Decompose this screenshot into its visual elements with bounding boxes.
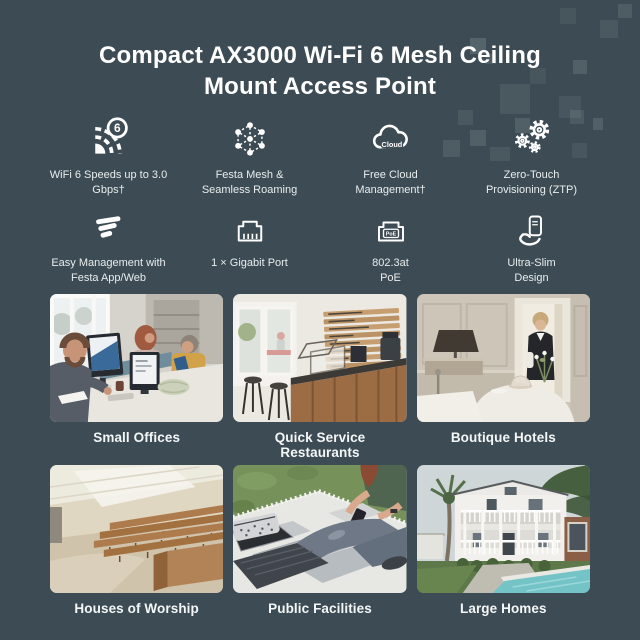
use-case-grid: Small Offices: [0, 294, 640, 621]
use-case-label: Quick Service Restaurants: [233, 422, 406, 465]
house-photo: [417, 465, 590, 593]
picnic-photo: [233, 465, 406, 593]
auditorium-photo: [50, 465, 223, 593]
page-title: Compact AX3000 Wi-Fi 6 Mesh Ceiling Moun…: [65, 40, 575, 102]
feature-ztp: Zero-Touch Provisioning (ZTP): [461, 116, 602, 198]
feature-label: Festa Mesh & Seamless Roaming: [195, 168, 305, 198]
use-case-label: Houses of Worship: [50, 593, 223, 621]
festa-logo-icon: [91, 210, 127, 248]
feature-cloud-management: Cloud Free Cloud Management†: [320, 116, 461, 198]
wifi6-badge-text: 6: [113, 121, 120, 135]
office-photo: [50, 294, 223, 422]
feature-poe: PoE 802.3at PoE: [320, 210, 461, 286]
feature-label: Easy Management with Festa App/Web: [46, 256, 171, 286]
feature-ultra-slim: Ultra-Slim Design: [461, 210, 602, 286]
use-case-public-facilities: Public Facilities: [233, 465, 406, 621]
use-case-boutique-hotels: Boutique Hotels: [417, 294, 590, 465]
feature-label: 1 × Gigabit Port: [211, 256, 288, 271]
use-case-quick-service-restaurants: Quick Service Restaurants: [233, 294, 406, 465]
feature-festa-app: Easy Management with Festa App/Web: [38, 210, 179, 286]
feature-label: Free Cloud Management†: [346, 168, 436, 198]
poe-port-icon: PoE: [373, 210, 409, 248]
hotel-photo: [417, 294, 590, 422]
cloud-icon: Cloud: [369, 116, 413, 160]
use-case-small-offices: Small Offices: [50, 294, 223, 465]
use-case-large-homes: Large Homes: [417, 465, 590, 621]
poe-icon-text: PoE: [385, 232, 396, 238]
feature-gigabit-port: 1 × Gigabit Port: [179, 210, 320, 286]
use-case-label: Boutique Hotels: [417, 422, 590, 450]
mesh-icon: [228, 116, 272, 160]
ethernet-port-icon: [232, 210, 268, 248]
gears-icon: [510, 116, 554, 160]
cloud-icon-text: Cloud: [381, 141, 402, 150]
feature-label: Ultra-Slim Design: [497, 256, 567, 286]
ultra-slim-icon: [514, 210, 550, 248]
product-banner: Compact AX3000 Wi-Fi 6 Mesh Ceiling Moun…: [0, 0, 640, 640]
use-case-label: Large Homes: [417, 593, 590, 621]
use-case-label: Public Facilities: [233, 593, 406, 621]
feature-festa-mesh: Festa Mesh & Seamless Roaming: [179, 116, 320, 198]
use-case-houses-of-worship: Houses of Worship: [50, 465, 223, 621]
feature-grid: 6 WiFi 6 Speeds up to 3.0 Gbps†: [0, 116, 640, 285]
use-case-label: Small Offices: [50, 422, 223, 450]
feature-label: Zero-Touch Provisioning (ZTP): [476, 168, 588, 198]
cafe-photo: [233, 294, 406, 422]
feature-wifi6-speeds: 6 WiFi 6 Speeds up to 3.0 Gbps†: [38, 116, 179, 198]
feature-label: 802.3at PoE: [363, 256, 418, 286]
wifi-6-icon: 6: [87, 116, 131, 160]
feature-label: WiFi 6 Speeds up to 3.0 Gbps†: [49, 168, 169, 198]
